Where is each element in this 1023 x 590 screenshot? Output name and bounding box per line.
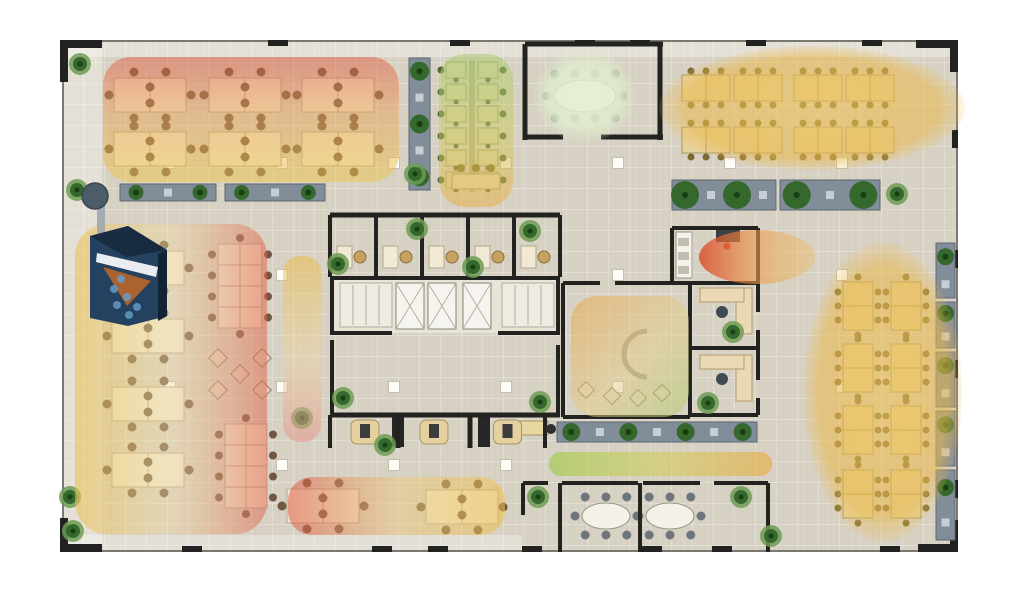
vending-machine-bottle xyxy=(125,311,133,319)
wall-column xyxy=(952,130,958,148)
plant xyxy=(731,330,736,335)
meeting-chair xyxy=(645,531,654,540)
plant xyxy=(71,529,76,534)
task-chair xyxy=(546,424,556,434)
vending-machine-side[interactable] xyxy=(158,250,167,321)
planter-item xyxy=(596,428,604,436)
plant xyxy=(68,495,73,500)
focus-booth-chair xyxy=(354,251,366,263)
column xyxy=(613,158,624,169)
planter-item xyxy=(942,519,950,527)
wall-column xyxy=(880,546,900,552)
wall-column xyxy=(372,546,392,552)
planter-plant xyxy=(734,192,740,198)
focus-booth-desk xyxy=(383,246,398,268)
corridor xyxy=(62,535,522,552)
booth-table xyxy=(429,424,439,438)
column xyxy=(613,270,624,281)
meeting-chair xyxy=(686,493,695,502)
planter-item xyxy=(653,428,661,436)
planter-item xyxy=(710,428,718,436)
column xyxy=(277,460,288,471)
wall-column xyxy=(575,40,595,46)
planter-item xyxy=(942,280,950,288)
heat-z-confblob xyxy=(533,49,637,143)
focus-booth-desk xyxy=(429,246,444,268)
planter-plant xyxy=(305,190,311,196)
column xyxy=(389,382,400,393)
plant xyxy=(739,495,744,500)
floorplan-stage xyxy=(0,0,1023,590)
plant xyxy=(471,265,476,270)
wall-column xyxy=(522,546,542,552)
column xyxy=(501,382,512,393)
heat-z-topleft xyxy=(103,57,399,182)
vending-machine-bottle xyxy=(113,301,121,309)
wall-column xyxy=(182,546,202,552)
focus-booth-chair xyxy=(446,251,458,263)
column xyxy=(389,460,400,471)
heat-z-greenbar xyxy=(549,452,772,476)
chair xyxy=(278,502,287,511)
meeting-chair xyxy=(622,493,631,502)
heat-z-vstrip xyxy=(283,256,321,442)
plant xyxy=(75,188,80,193)
wall-column xyxy=(630,40,650,46)
meeting-chair xyxy=(686,531,695,540)
office-chair xyxy=(716,373,728,385)
device-marker[interactable] xyxy=(82,183,108,209)
chair xyxy=(269,473,277,481)
vending-machine-bottle xyxy=(133,303,141,311)
plant xyxy=(415,227,420,232)
floorplan-canvas xyxy=(0,0,1023,590)
planter-item xyxy=(416,94,424,102)
wall-column xyxy=(268,40,288,46)
focus-booth-chair xyxy=(400,251,412,263)
planter-plant xyxy=(197,190,203,196)
vending-machine-bottle xyxy=(117,275,125,283)
office-chair xyxy=(716,306,728,318)
planter-plant xyxy=(417,121,423,127)
wall-column xyxy=(862,40,882,46)
vending-machine-bottle xyxy=(123,293,131,301)
meeting-chair xyxy=(666,493,675,502)
heat-z-midred xyxy=(699,230,815,284)
fixture xyxy=(678,252,689,260)
plant xyxy=(413,172,418,177)
chair xyxy=(269,494,277,502)
planter-item xyxy=(759,191,767,199)
wall-column xyxy=(712,546,732,552)
chair xyxy=(688,154,695,161)
planter-item xyxy=(416,146,424,154)
planter-item xyxy=(271,189,279,197)
meeting-chair xyxy=(602,493,611,502)
meeting-chair xyxy=(581,531,590,540)
meeting-chair xyxy=(581,493,590,502)
meeting-chair xyxy=(602,531,611,540)
heat-z-topright xyxy=(659,46,965,170)
plant xyxy=(341,396,346,401)
fixture xyxy=(678,266,689,274)
meeting-chair xyxy=(697,512,706,521)
chair xyxy=(703,154,710,161)
plant xyxy=(769,534,774,539)
office-desk xyxy=(700,355,744,369)
meeting-table xyxy=(582,503,630,529)
plant xyxy=(383,443,388,448)
focus-booth-chair xyxy=(492,251,504,263)
heat-z-roomblob xyxy=(571,296,689,417)
plant xyxy=(536,495,541,500)
planter-plant xyxy=(794,192,800,198)
meeting-chair xyxy=(622,531,631,540)
meeting-table xyxy=(646,503,694,529)
fixture xyxy=(478,417,490,447)
planter-plant xyxy=(683,429,689,435)
marker-stem xyxy=(97,205,105,235)
plant xyxy=(706,401,711,406)
focus-booth-chair xyxy=(538,251,550,263)
planter-plant xyxy=(860,192,866,198)
column xyxy=(501,460,512,471)
planter-plant xyxy=(568,429,574,435)
planter-item xyxy=(826,191,834,199)
planter-plant xyxy=(740,429,746,435)
plant xyxy=(528,229,533,234)
planter-plant xyxy=(682,192,688,198)
plant xyxy=(538,400,543,405)
meeting-chair xyxy=(666,531,675,540)
planter-plant xyxy=(239,190,245,196)
planter-plant xyxy=(133,190,139,196)
wall-column xyxy=(642,546,662,552)
wall-column xyxy=(450,40,470,46)
meeting-chair xyxy=(645,493,654,502)
focus-booth-desk xyxy=(521,246,536,268)
meeting-chair xyxy=(571,512,580,521)
booth-table xyxy=(503,424,513,438)
wall-column xyxy=(746,40,766,46)
chair xyxy=(269,431,277,439)
planter-item xyxy=(164,189,172,197)
wall-column xyxy=(428,546,448,552)
planter-plant xyxy=(417,68,423,74)
planter-item xyxy=(707,191,715,199)
office-desk xyxy=(700,288,744,302)
heat-z-greenstrip xyxy=(439,54,513,207)
heat-z-right xyxy=(804,242,962,542)
planter-plant xyxy=(943,254,949,260)
vending-machine-bottle xyxy=(110,285,118,293)
plant xyxy=(895,192,900,197)
booth-table xyxy=(360,424,370,438)
planter-plant xyxy=(625,429,631,435)
plant xyxy=(78,62,83,67)
fixture xyxy=(678,238,689,246)
chair xyxy=(269,452,277,460)
heat-z-bottombar xyxy=(288,477,505,535)
plant xyxy=(336,262,341,267)
